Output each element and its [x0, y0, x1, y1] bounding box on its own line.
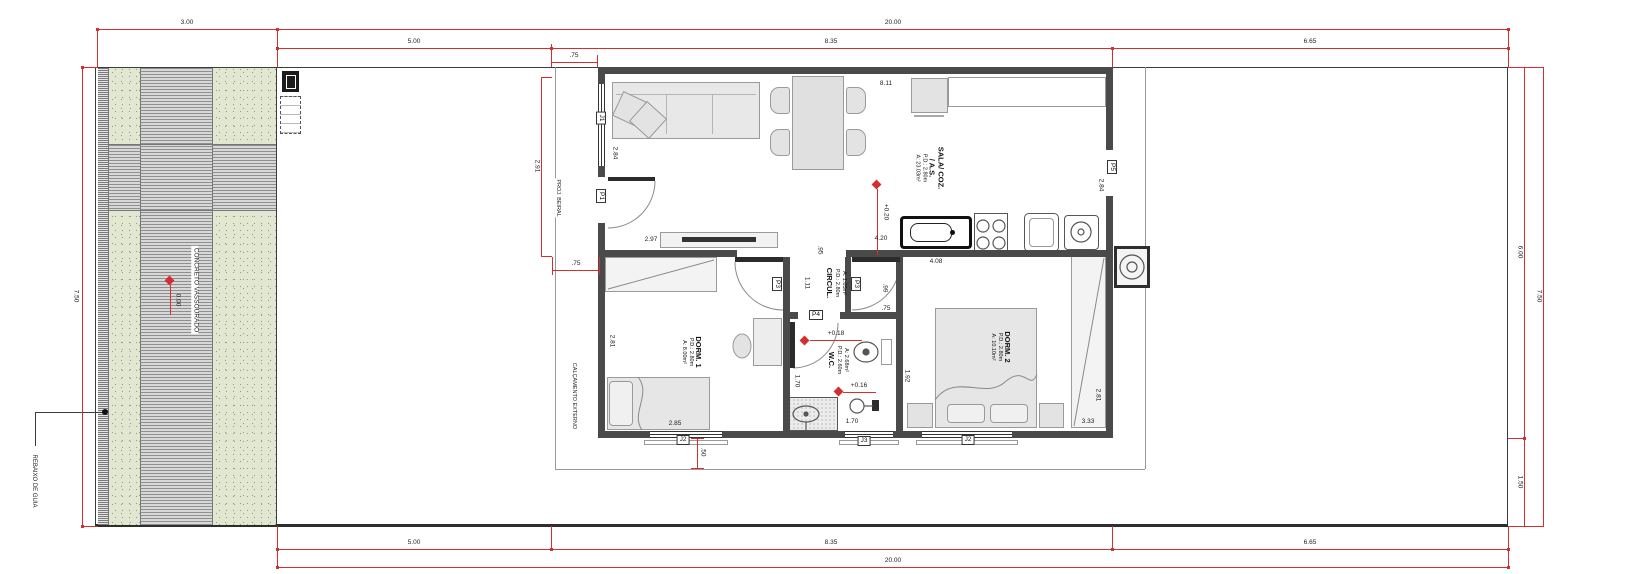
wall-bottom: [1012, 431, 1113, 438]
dim-text: 7.50: [72, 290, 79, 303]
door-leaf-p1: [608, 177, 655, 181]
dim-line: [1112, 48, 1508, 49]
dim-line-291: [541, 77, 542, 256]
dim-dot: [1523, 437, 1526, 440]
dim-line: [97, 29, 277, 30]
dim-text: 2.84: [611, 147, 618, 160]
dim-text: 8.11: [880, 81, 892, 88]
dim-dot: [276, 47, 279, 50]
room-label-circul: A: 1.05m² P.D.: 2.80m CIRCUL.: [825, 268, 847, 298]
stove-burner: [977, 220, 989, 232]
dim-dot: [276, 28, 279, 31]
dim-dot: [1507, 566, 1510, 569]
room-label-dorm1: DORM. 1 P.D.: 2.80m A: 8.00m²: [681, 336, 703, 367]
wall-left: [598, 166, 605, 177]
dim-dot: [1111, 548, 1114, 551]
dim-text: 2.81: [608, 335, 615, 348]
room-label-dorm2: DORM. 2 P.D.: 2.80m A: 10.10m²: [990, 331, 1012, 362]
wall-right: [1106, 67, 1113, 150]
dim-ext: [1112, 48, 1113, 67]
dim-text: 2.97: [645, 237, 658, 244]
dim-ext: [97, 29, 98, 67]
wall-middle: [846, 250, 1106, 257]
wall-left: [598, 67, 605, 84]
dim-text: 2.81: [1094, 389, 1101, 402]
dim-text: 3.00: [181, 20, 194, 27]
dim-text: 1.11: [803, 277, 810, 289]
wall-dorm2-left: [896, 257, 903, 438]
level-stem: [170, 285, 171, 315]
room-area: A: 1.05m²: [841, 268, 848, 298]
dim-text: .75: [571, 261, 580, 268]
dim-text: 1.70: [793, 375, 800, 388]
dim-tick: [82, 526, 98, 527]
dim-tick: [82, 67, 98, 68]
wall-wc-top: [840, 312, 896, 319]
dim-dot: [1507, 28, 1510, 31]
shower-drain: [804, 412, 808, 416]
dim-ext: [597, 55, 598, 67]
dim-tick: [1508, 67, 1544, 68]
washer-drum: [1071, 222, 1091, 242]
dim-ext: [551, 526, 552, 549]
stove-burner: [993, 237, 1005, 249]
dim-dot: [1507, 548, 1510, 551]
door-leaf-p3-dorm2: [852, 257, 900, 262]
dim-ext: [1508, 526, 1509, 567]
dim-text: 7.50: [1535, 290, 1542, 303]
level-value-shower: +0.16: [851, 383, 867, 390]
dim-text: .95: [816, 245, 823, 254]
stove-burner: [977, 237, 989, 249]
stove-burner: [993, 220, 1005, 232]
dim-ext: [552, 257, 553, 275]
floor-plan-drawing: CONCRETO VASSOURADO REBAIXO DE GUIA PROJ…: [0, 0, 1636, 574]
dim-line: [1112, 549, 1508, 550]
dim-text: 2.84: [1097, 179, 1104, 192]
dim-tick: [1508, 526, 1544, 527]
room-ceiling-height: P.D.: 2.80m: [688, 336, 695, 367]
dim-tick: [691, 438, 704, 439]
room-ceiling-height: P.D.: 2.80m: [997, 331, 1004, 362]
dim-text: 5.00: [408, 540, 421, 547]
wall-top: [598, 67, 1113, 74]
tank-circle-inner: [1127, 262, 1137, 272]
level-value-sala: +0.20: [882, 204, 889, 220]
window-label-j2-dorm1: J2: [677, 435, 690, 445]
room-ceiling-height: P.D.: 2.80m: [834, 268, 841, 298]
room-area: A: 10.10m²: [990, 331, 997, 362]
dim-dot: [81, 525, 84, 528]
dim-line: [277, 567, 1508, 568]
shower-head: [850, 399, 864, 413]
dim-tick: [691, 468, 704, 469]
desk-chair-dorm1: [733, 334, 751, 358]
dim-line-75mid: [552, 270, 600, 271]
dim-text: 5.00: [408, 39, 421, 46]
door-label-p1: P1: [596, 189, 606, 203]
wall-left: [598, 223, 605, 438]
dim-ext: [1112, 526, 1113, 549]
dim-dot: [1111, 47, 1114, 50]
dim-line: [551, 549, 1112, 550]
dim-dot: [96, 28, 99, 31]
dim-dot: [550, 47, 553, 50]
wall-middle: [605, 250, 737, 257]
dim-line-right-inner: [1524, 67, 1525, 526]
detail-overlay: [0, 0, 1636, 574]
room-area: A: 2.68m²: [843, 346, 850, 374]
room-name: W.C.: [827, 346, 836, 374]
room-label-wc: A: 2.68m² P.D.: 2.60m W.C.: [827, 346, 849, 374]
dim-text: 1.92: [903, 370, 910, 383]
dim-text: 4.20: [875, 236, 888, 243]
dim-text: 2.91: [533, 160, 540, 173]
dim-dot: [276, 566, 279, 569]
dim-text: .50: [699, 447, 706, 456]
dim-text: 20.00: [885, 558, 901, 565]
door-leaf-p3-dorm1: [735, 257, 783, 262]
door-label-p3-dorm1: P3: [772, 277, 782, 291]
door-swing-p1: [608, 181, 655, 228]
window-j1: [598, 84, 605, 166]
tank-circle: [1120, 255, 1144, 279]
dim-text: .75: [569, 53, 578, 60]
dim-dot: [1507, 47, 1510, 50]
dim-text: 3.33: [1082, 419, 1095, 426]
dim-line: [277, 48, 551, 49]
door-label-p3-dorm2: P3: [851, 277, 861, 291]
bed1-fold: [638, 377, 643, 430]
door-leaf-p4: [790, 322, 795, 368]
room-name: SALA/ COZ.: [937, 147, 946, 190]
level-value-wc: +0.18: [828, 331, 844, 338]
dim-text: .75: [881, 306, 890, 313]
room-name: CIRCUL.: [825, 268, 834, 298]
door-label-p5: P5: [1107, 160, 1117, 174]
room-ceiling-height: P.D.: 2.80m: [921, 147, 928, 190]
dim-text: 1.50: [1516, 476, 1523, 489]
dim-ext: [599, 257, 600, 275]
wall-dorm1-right: [783, 257, 790, 438]
dim-ext: [277, 526, 278, 567]
wall-wc-top: [790, 312, 798, 319]
dim-tick: [541, 256, 552, 257]
dim-text: .99: [881, 283, 888, 292]
dim-text: 6.00: [1516, 246, 1523, 259]
dim-text: 4.08: [930, 259, 943, 266]
bed2-fold: [935, 374, 1037, 400]
room-name: DORM. 2: [1003, 331, 1012, 362]
room-name2: / A.S.: [928, 147, 937, 190]
dim-text: 20.00: [885, 20, 901, 27]
dim-dot: [276, 548, 279, 551]
level-stem: [843, 392, 876, 393]
dim-line-right-outer: [1543, 67, 1544, 526]
room-area: A: 23.03m²: [914, 147, 921, 190]
level-stem: [877, 189, 878, 255]
dim-line: [277, 549, 551, 550]
wall-right: [1106, 196, 1113, 438]
dim-line: [551, 48, 1112, 49]
dim-text: 6.65: [1304, 39, 1317, 46]
dim-text: 6.65: [1304, 540, 1317, 547]
window-label-j1: J1: [596, 112, 606, 125]
wardrobe1-diagonal: [608, 260, 714, 289]
dim-dot: [81, 66, 84, 69]
dim-text: 2.85: [669, 421, 682, 428]
door-label-p4: P4: [809, 310, 823, 320]
dim-line: [277, 29, 1508, 30]
dim-dot: [550, 548, 553, 551]
washer-drum-center: [1078, 229, 1084, 235]
dim-text: 8.35: [825, 540, 838, 547]
dim-line-left: [82, 67, 83, 526]
room-label-sala: SALA/ COZ. / A.S. P.D.: 2.80m A: 23.03m²: [914, 147, 945, 190]
level-value-driveway: 0.00: [174, 294, 181, 307]
wall-bottom: [598, 431, 650, 438]
window-label-j2-dorm2: J2: [962, 435, 975, 445]
dim-tick: [541, 77, 552, 78]
window-label-j3: J3: [858, 436, 871, 446]
dim-line-eave75: [551, 62, 598, 63]
toilet-drain: [863, 349, 869, 355]
room-area: A: 8.00m²: [681, 336, 688, 367]
dim-text: 8.35: [825, 39, 838, 46]
dim-text: 1.70: [846, 419, 859, 426]
room-name: DORM. 1: [694, 336, 703, 367]
room-ceiling-height: P.D.: 2.60m: [836, 346, 843, 374]
level-stem: [810, 340, 862, 341]
